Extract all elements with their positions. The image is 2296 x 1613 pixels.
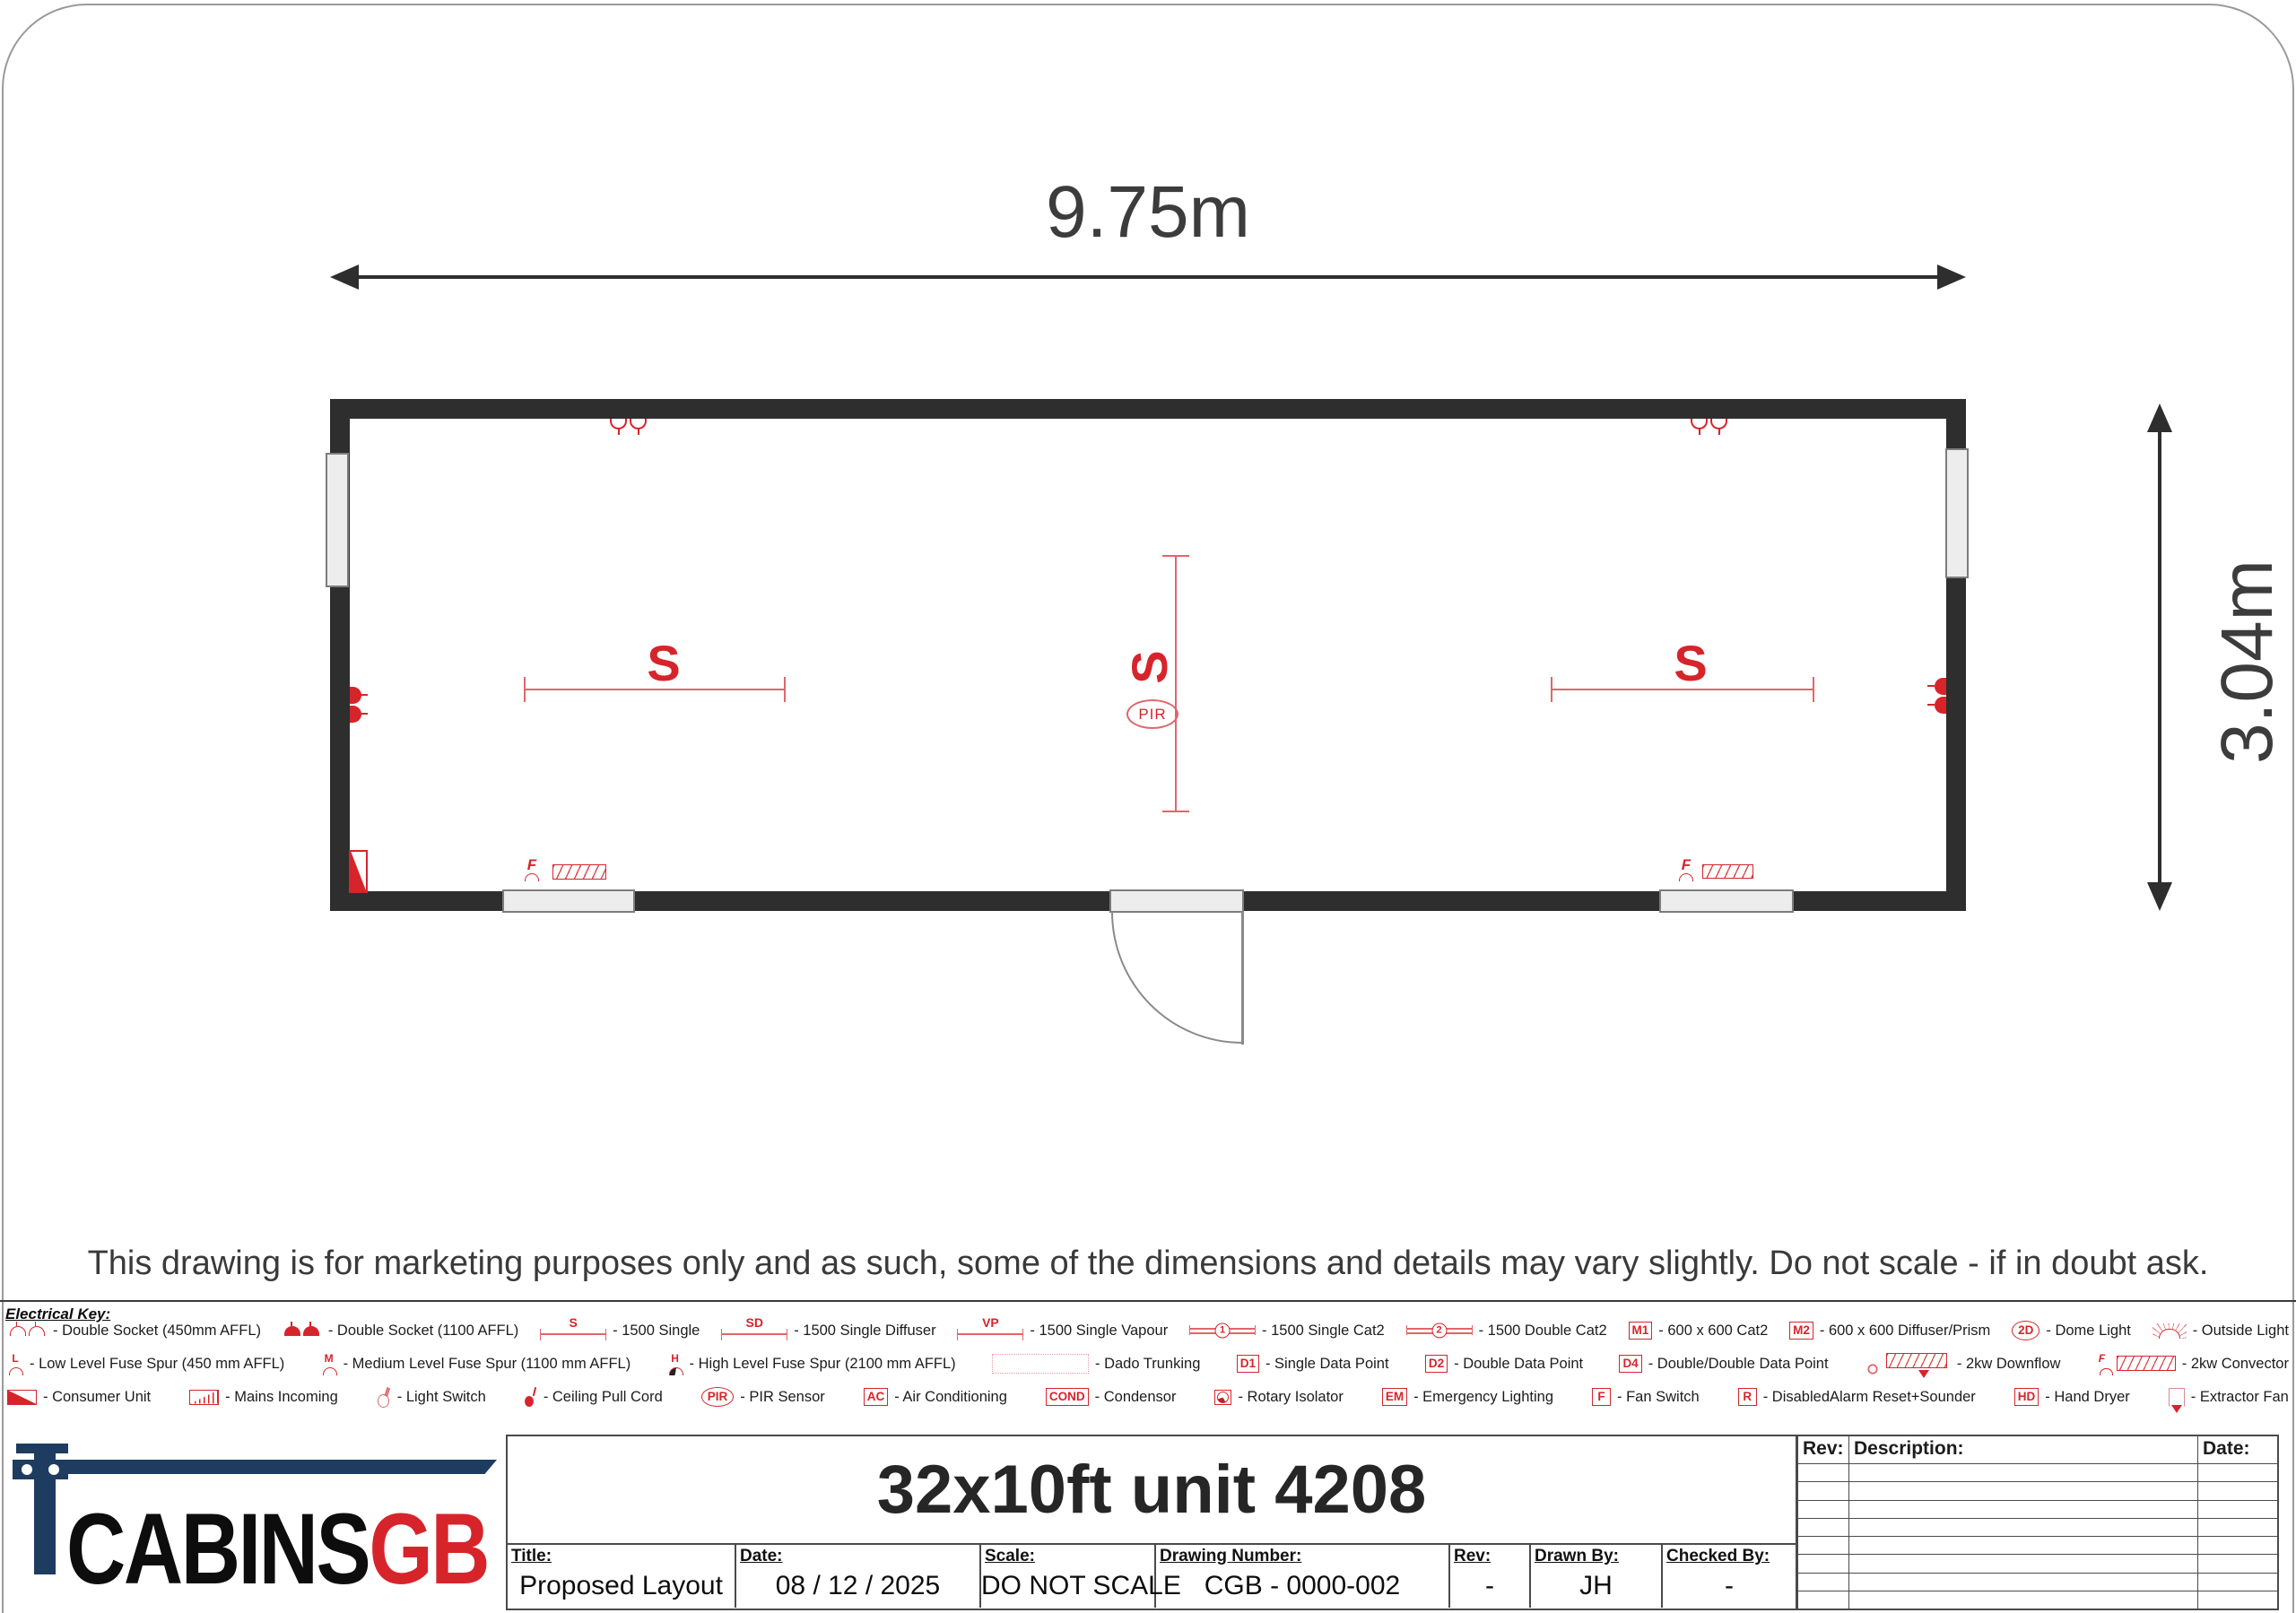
double-data-point-icon: D2 [1425, 1355, 1448, 1373]
double-socket-outline-icon [7, 1325, 47, 1337]
logo-hole [48, 1464, 59, 1475]
legend-item: - Double Socket (450mm AFFL) [7, 1322, 261, 1340]
revision-cell [1849, 1519, 2198, 1536]
title-block: 32x10ft unit 4208 Title:Proposed LayoutD… [506, 1435, 1797, 1610]
revision-cell [2198, 1574, 2277, 1591]
arrow-left-icon [330, 264, 359, 290]
electrical-key-row: - Consumer Unit- Mains Incoming- Light S… [7, 1383, 2289, 1411]
revision-row [1798, 1464, 2277, 1482]
revision-row [1798, 1591, 2277, 1609]
drawing-title: 32x10ft unit 4208 [508, 1436, 1796, 1543]
legend-item-label: - Dome Light [2046, 1322, 2130, 1340]
revision-row [1798, 1555, 2277, 1573]
revision-table-body [1798, 1464, 2277, 1609]
light-1500-single-diffuser-icon: SD [721, 1319, 787, 1342]
single-data-point-icon: D1 [1237, 1355, 1259, 1373]
revision-cell [1849, 1482, 2198, 1499]
legend-item-label: - Double Socket (450mm AFFL) [53, 1322, 261, 1340]
legend-symbol-label: SD [745, 1316, 762, 1329]
legend-item-label: - Air Conditioning [894, 1389, 1007, 1406]
legend-item-label: - Fan Switch [1617, 1389, 1700, 1406]
legend-item-label: - Condensor [1095, 1389, 1177, 1406]
legend-item-label: - Double/Double Data Point [1648, 1356, 1829, 1373]
width-dimension-line [357, 275, 1939, 279]
field-label: Checked By: [1666, 1547, 1770, 1566]
legend-item: - Mains Incoming [189, 1389, 338, 1406]
legend-symbol-label: M [325, 1353, 334, 1364]
legend-symbol-label: D2 [1429, 1357, 1444, 1370]
legend-item: - Light Switch [377, 1387, 486, 1408]
field-label: Scale: [985, 1547, 1035, 1566]
legend-item: 2D- Dome Light [2012, 1321, 2131, 1340]
legend-item-label: - Extractor Fan [2191, 1389, 2289, 1406]
double-socket-outline-icon [610, 419, 647, 429]
revision-header-cell: Date: [2198, 1436, 2277, 1463]
legend-item-label: - 600 x 600 Cat2 [1658, 1322, 1768, 1340]
light-switch-icon [377, 1387, 391, 1408]
legend-symbol-label: HD [2018, 1391, 2036, 1403]
legend-item: D2- Double Data Point [1425, 1355, 1583, 1373]
logo-hole [22, 1464, 32, 1475]
legend-item: PIR- PIR Sensor [701, 1387, 825, 1407]
legend-item: F- Fan Switch [1592, 1388, 1700, 1406]
legend-item: - Consumer Unit [7, 1389, 151, 1406]
pir-sensor-icon: PIR [1126, 699, 1178, 729]
field-value: JH [1531, 1571, 1661, 1601]
door-leaf [1241, 912, 1244, 1045]
legend-item-label: - Dado Trunking [1095, 1356, 1200, 1373]
revision-cell [2198, 1555, 2277, 1572]
legend-item-label: - Hand Dryer [2045, 1389, 2129, 1406]
revision-cell [1849, 1555, 2198, 1572]
revision-cell [1849, 1464, 2198, 1481]
light-1500-single-vapour-icon: VP [957, 1319, 1023, 1342]
revision-cell [1798, 1537, 1849, 1554]
revision-header-cell: Rev: [1798, 1436, 1849, 1463]
legend-symbol-label: F [2099, 1353, 2105, 1364]
legend-item-label: - 1500 Single Cat2 [1262, 1322, 1385, 1340]
revision-table: Rev:Description:Date: [1796, 1435, 2279, 1610]
fuse-spur-icon: F [1677, 857, 1695, 882]
pir-sensor-icon: PIR [701, 1387, 735, 1407]
field-value: DO NOT SCALE [981, 1571, 1154, 1601]
legend-item-label: - Emergency Lighting [1413, 1389, 1553, 1406]
legend-item: AC- Air Conditioning [864, 1388, 1007, 1406]
legend-symbol-label: H [671, 1353, 679, 1364]
legend-item: H- High Level Fuse Spur (2100 mm AFFL) [667, 1353, 956, 1375]
hand-dryer-icon: HD [2014, 1388, 2039, 1406]
revision-row [1798, 1537, 2277, 1555]
legend-item-label: - High Level Fuse Spur (2100 mm AFFL) [690, 1356, 956, 1373]
legend-item: - Ceiling Pull Cord [525, 1387, 663, 1408]
field-value: Proposed Layout [508, 1571, 735, 1601]
consumer-unit-icon [7, 1390, 37, 1405]
legend-item: M- Medium Level Fuse Spur (1100 mm AFFL) [321, 1353, 631, 1375]
revision-cell [1798, 1519, 1849, 1536]
title-block-field: Title:Proposed Layout [508, 1545, 736, 1608]
tick [524, 677, 526, 702]
revision-row [1798, 1482, 2277, 1500]
legend-item: - Rotary Isolator [1214, 1389, 1343, 1406]
dado-trunking-icon [992, 1354, 1089, 1374]
legend-item-label: - Outside Light [2193, 1322, 2289, 1340]
low-level-fuse-spur-icon: L [7, 1353, 23, 1375]
field-label: Date: [740, 1547, 783, 1566]
legend-item: - Double Socket (1100 AFFL) [283, 1322, 518, 1340]
window-right [1945, 448, 1969, 578]
double-socket-filled-icon [283, 1325, 322, 1337]
legend-item-label: - 600 x 600 Diffuser/Prism [1820, 1322, 1990, 1340]
revision-cell [2198, 1591, 2277, 1609]
legend-item-label: - Low Level Fuse Spur (450 mm AFFL) [30, 1356, 284, 1373]
divider [0, 1300, 2296, 1302]
legend-item: D1- Single Data Point [1237, 1355, 1389, 1373]
convector-heater-icon [552, 864, 606, 880]
field-label: Rev: [1454, 1547, 1491, 1566]
medium-level-fuse-spur-icon: M [321, 1353, 337, 1375]
legend-item-label: - DisabledAlarm Reset+Sounder [1763, 1389, 1976, 1406]
field-value: 08 / 12 / 2025 [736, 1571, 979, 1601]
legend-item-label: - Rotary Isolator [1238, 1389, 1343, 1406]
legend-item-label: - Double Socket (1100 AFFL) [328, 1322, 518, 1340]
600x600-cat2-icon: M1 [1629, 1322, 1653, 1340]
tick [1813, 677, 1814, 702]
electrical-key-row: L- Low Level Fuse Spur (450 mm AFFL)M- M… [7, 1349, 2289, 1378]
legend-item-label: - 1500 Double Cat2 [1479, 1322, 1607, 1340]
legend-item: M2- 600 x 600 Diffuser/Prism [1789, 1322, 1990, 1340]
revision-row [1798, 1501, 2277, 1519]
legend-symbol-label: 2 [1431, 1323, 1447, 1339]
legend-item-label: - Double Data Point [1454, 1356, 1583, 1373]
disabled-alarm-reset-sounder-icon: R [1738, 1388, 1757, 1406]
arrow-right-icon [1937, 264, 1966, 290]
legend-item: - Extractor Fan [2169, 1388, 2289, 1407]
title-block-field: Checked By:- [1663, 1545, 1796, 1608]
revision-cell [1849, 1501, 2198, 1518]
legend-symbol-label: AC [867, 1391, 885, 1403]
arrow-down-icon [2147, 882, 2172, 911]
rotary-isolator-icon [1214, 1390, 1231, 1405]
field-label: Title: [511, 1547, 552, 1566]
high-level-fuse-spur-icon: H [667, 1353, 683, 1375]
light-1500-single-icon: S [540, 1319, 606, 1342]
legend-item-label: - 2kw Downflow [1957, 1356, 2061, 1373]
disclaimer-text: This drawing is for marketing purposes o… [0, 1244, 2296, 1283]
legend-item: - Outside Light [2152, 1322, 2289, 1340]
revision-cell [1798, 1464, 1849, 1481]
legend-item: R- DisabledAlarm Reset+Sounder [1738, 1388, 1976, 1406]
revision-row [1798, 1519, 2277, 1537]
double-double-data-point-icon: D4 [1619, 1355, 1641, 1373]
logo-text-black: CABINS [66, 1493, 369, 1605]
consumer-unit-icon [349, 850, 368, 893]
legend-item-label: - Light Switch [397, 1389, 486, 1406]
height-dimension-line [2158, 429, 2161, 884]
legend-symbol-label: F [1597, 1391, 1605, 1403]
legend-symbol-label: M1 [1632, 1324, 1649, 1337]
company-logo: CABINSGB [9, 1433, 502, 1610]
revision-cell [2198, 1537, 2277, 1554]
arrow-up-icon [2147, 403, 2172, 432]
title-block-field: Drawing Number:CGB - 0000-002 [1156, 1545, 1450, 1608]
drawing-sheet: 9.75m 3.04m F F S S S PIR This drawing i… [0, 0, 2296, 1613]
legend-item: D4- Double/Double Data Point [1619, 1355, 1828, 1373]
tick [1162, 811, 1189, 812]
legend-symbol-label: PIR [708, 1391, 728, 1403]
field-value: - [1450, 1571, 1529, 1601]
legend-item: S- 1500 Single [540, 1319, 700, 1342]
legend-item: - Dado Trunking [992, 1354, 1200, 1374]
revision-cell [1798, 1501, 1849, 1518]
title-block-field: Scale:DO NOT SCALE [981, 1545, 1156, 1608]
electrical-key-row: - Double Socket (450mm AFFL)- Double Soc… [7, 1316, 2289, 1345]
light-1500-double-cat2-icon: 2 [1406, 1322, 1473, 1340]
legend-item-label: - 1500 Single Vapour [1030, 1322, 1168, 1340]
title-block-field: Date:08 / 12 / 2025 [736, 1545, 981, 1608]
field-label: Drawing Number: [1160, 1547, 1301, 1566]
door-opening [1109, 889, 1244, 913]
outside-light-icon [2152, 1323, 2187, 1339]
600x600-diffuser-prism-icon: M2 [1789, 1322, 1813, 1340]
revision-cell [1849, 1591, 2198, 1609]
legend-symbol-label: L [12, 1353, 18, 1364]
extractor-fan-icon [2169, 1388, 2185, 1407]
window-left [326, 453, 349, 587]
logo-wordmark: CABINSGB [66, 1499, 488, 1600]
tick [1551, 677, 1552, 702]
mains-incoming-icon [189, 1390, 219, 1405]
revision-cell [1798, 1555, 1849, 1572]
window-bottom-left [502, 889, 635, 913]
emergency-lighting-icon: EM [1382, 1388, 1407, 1406]
condensor-icon: COND [1046, 1388, 1089, 1406]
double-socket-filled-icon [350, 687, 361, 723]
legend-item: M1- 600 x 600 Cat2 [1629, 1322, 1769, 1340]
air-conditioning-icon: AC [864, 1388, 889, 1406]
field-label: Drawn By: [1535, 1547, 1619, 1566]
legend-item: F- 2kw Convector [2097, 1353, 2289, 1375]
ceiling-pull-cord-icon [525, 1387, 537, 1408]
revision-cell [2198, 1501, 2277, 1518]
legend-item: COND- Condensor [1046, 1388, 1177, 1406]
legend-item-label: - Consumer Unit [43, 1389, 151, 1406]
legend-item: L- Low Level Fuse Spur (450 mm AFFL) [7, 1353, 284, 1375]
legend-item: - 2kw Downflow [1865, 1352, 2061, 1375]
legend-symbol-label: R [1743, 1391, 1752, 1403]
legend-item: 1- 1500 Single Cat2 [1189, 1322, 1385, 1340]
light-1500-single-cat2-icon: 1 [1189, 1322, 1256, 1340]
downflow-heater-icon [1865, 1352, 1951, 1375]
legend-item-label: - Mains Incoming [225, 1389, 338, 1406]
legend-item-label: - Single Data Point [1265, 1356, 1389, 1373]
convector-heater-icon [1702, 864, 1753, 879]
double-socket-outline-icon [1691, 419, 1727, 429]
legend-item-label: - Ceiling Pull Cord [544, 1389, 663, 1406]
revision-header-cell: Description: [1849, 1436, 2198, 1463]
legend-item-label: - Medium Level Fuse Spur (1100 mm AFFL) [344, 1356, 631, 1373]
legend-symbol-label: D1 [1240, 1357, 1256, 1370]
dome-light-icon: 2D [2012, 1321, 2039, 1340]
height-dimension-label: 3.04m [2205, 402, 2279, 922]
legend-symbol-label: EM [1386, 1391, 1404, 1403]
legend-item-label: - 1500 Single [613, 1322, 700, 1340]
fuse-spur-icon: F [523, 857, 541, 882]
legend-item-label: - 1500 Single Diffuser [794, 1322, 935, 1340]
revision-row [1798, 1574, 2277, 1591]
legend-symbol-label: D4 [1622, 1357, 1638, 1370]
width-dimension-label: 9.75m [924, 170, 1372, 255]
double-socket-filled-icon [1935, 678, 1946, 714]
legend-item-label: - 2kw Convector [2182, 1356, 2289, 1373]
logo-crane-beam [13, 1460, 497, 1474]
revision-cell [1849, 1537, 2198, 1554]
legend-symbol-label: COND [1049, 1391, 1085, 1403]
field-value: CGB - 0000-002 [1156, 1571, 1448, 1601]
legend-item: SD- 1500 Single Diffuser [721, 1319, 935, 1342]
revision-cell [2198, 1482, 2277, 1499]
legend-item-label: - PIR Sensor [740, 1389, 824, 1406]
revision-cell [1798, 1482, 1849, 1499]
convector-heater-icon: F [2097, 1353, 2176, 1375]
light-switch-label: S [1125, 640, 1175, 694]
revision-cell [1798, 1591, 1849, 1609]
revision-cell [2198, 1464, 2277, 1481]
tick [784, 677, 786, 702]
light-switch-label: S [610, 638, 717, 689]
revision-cell [1849, 1574, 2198, 1591]
revision-table-header: Rev:Description:Date: [1798, 1436, 2277, 1464]
revision-cell [2198, 1519, 2277, 1536]
tick [1162, 555, 1189, 557]
window-bottom-right [1659, 889, 1794, 913]
logo-text-red: GB [369, 1493, 488, 1605]
field-value: - [1663, 1571, 1796, 1601]
legend-item: 2- 1500 Double Cat2 [1406, 1322, 1607, 1340]
legend-symbol-label: M2 [1793, 1324, 1810, 1337]
light-switch-label: S [1637, 638, 1744, 689]
legend-symbol-label: 1 [1215, 1323, 1231, 1339]
fan-switch-icon: F [1592, 1388, 1611, 1406]
legend-item: VP- 1500 Single Vapour [957, 1319, 1168, 1342]
title-block-field: Rev:- [1450, 1545, 1531, 1608]
title-block-fields: Title:Proposed LayoutDate:08 / 12 / 2025… [508, 1543, 1796, 1608]
legend-symbol-label: 2D [2018, 1324, 2033, 1337]
revision-cell [1798, 1574, 1849, 1591]
legend-item: HD- Hand Dryer [2014, 1388, 2130, 1406]
title-block-field: Drawn By:JH [1531, 1545, 1663, 1608]
legend-symbol-label: S [569, 1316, 577, 1329]
legend-item: EM- Emergency Lighting [1382, 1388, 1553, 1406]
legend-symbol-label: VP [982, 1316, 999, 1329]
